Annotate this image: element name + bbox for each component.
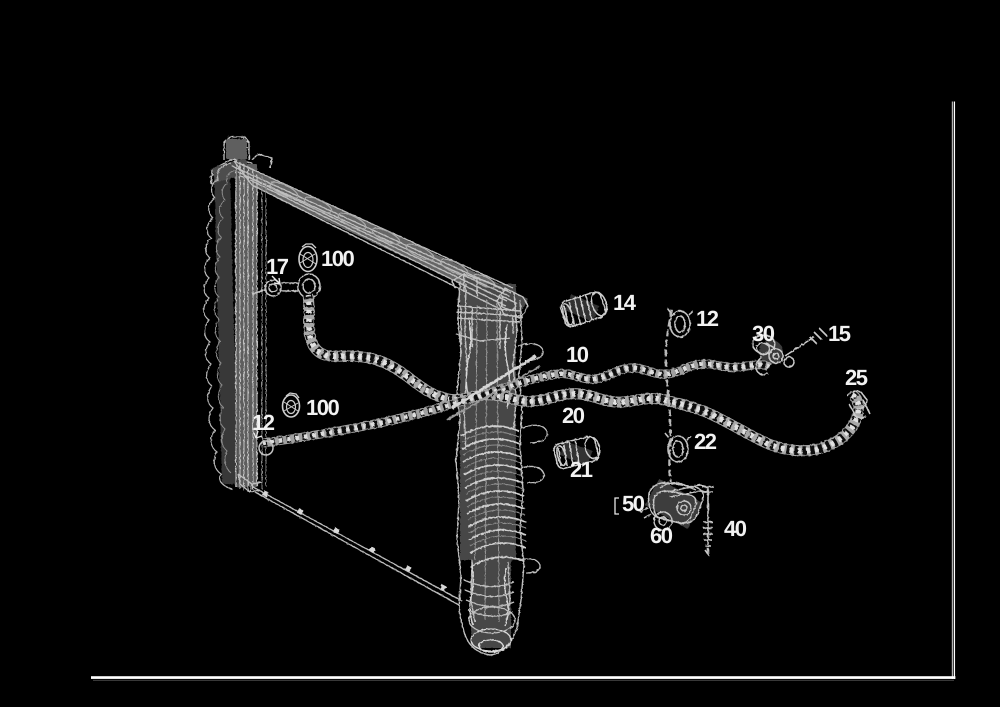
svg-text:100: 100 [321, 246, 354, 271]
svg-text:50: 50 [622, 491, 645, 516]
svg-text:17: 17 [266, 254, 289, 279]
svg-text:15: 15 [828, 321, 851, 346]
svg-text:100: 100 [306, 395, 339, 420]
svg-text:14: 14 [613, 290, 637, 315]
svg-text:22: 22 [694, 429, 717, 454]
svg-text:21: 21 [570, 457, 593, 482]
svg-text:25: 25 [845, 365, 868, 390]
svg-text:12: 12 [252, 410, 275, 435]
svg-text:40: 40 [724, 516, 747, 541]
svg-text:20: 20 [562, 403, 585, 428]
svg-text:10: 10 [566, 342, 589, 367]
svg-text:60: 60 [650, 523, 673, 548]
svg-text:30: 30 [752, 321, 775, 346]
svg-text:12: 12 [696, 306, 719, 331]
